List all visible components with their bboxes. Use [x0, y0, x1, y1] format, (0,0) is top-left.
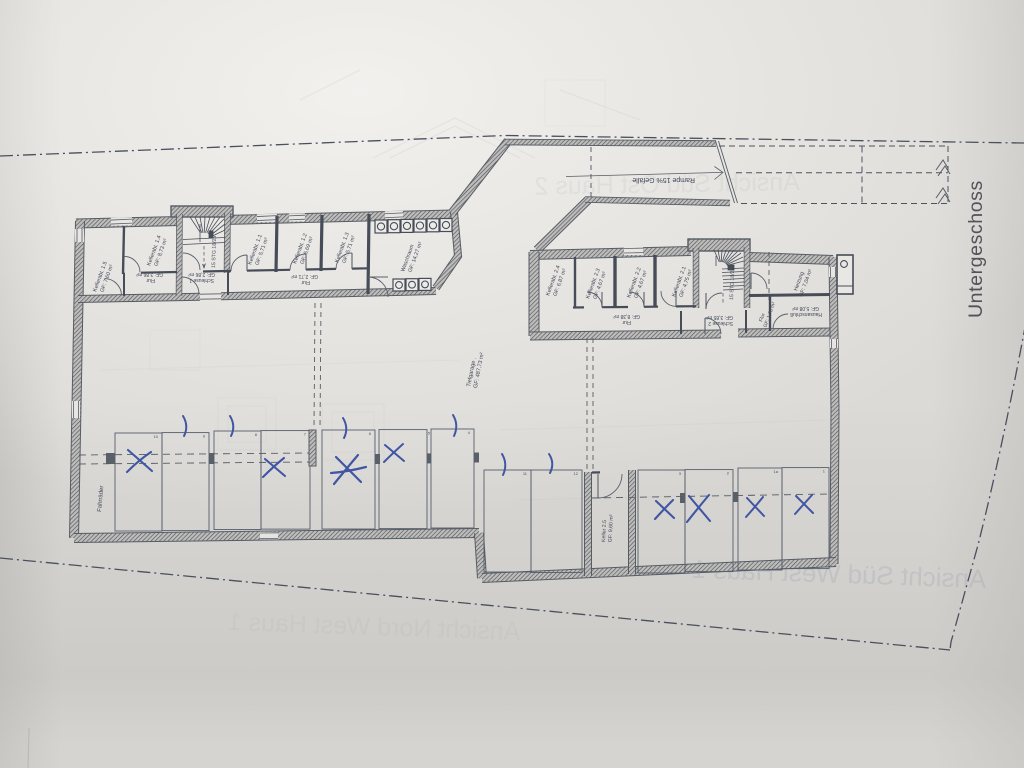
svg-text:6: 6: [369, 431, 372, 436]
svg-text:12: 12: [574, 471, 579, 476]
svg-text:GF: 8,38 m²: GF: 8,38 m²: [613, 313, 640, 319]
svg-text:GF: 9,60 m²: GF: 9,60 m²: [607, 514, 614, 542]
svg-text:2: 2: [727, 471, 730, 476]
svg-text:3: 3: [679, 471, 682, 476]
svg-text:Untergeschoss: Untergeschoss: [965, 180, 987, 318]
svg-text:4: 4: [468, 430, 471, 435]
svg-text:7: 7: [304, 432, 307, 437]
svg-text:11: 11: [523, 471, 528, 476]
svg-text:GF: 2,86 m²: GF: 2,86 m²: [188, 271, 215, 277]
svg-text:GF: 3,86 m²: GF: 3,86 m²: [136, 271, 163, 277]
svg-text:GF: 3,85 m²: GF: 3,85 m²: [706, 314, 733, 320]
svg-text:GF: 2,71 m²: GF: 2,71 m²: [291, 273, 318, 279]
svg-text:8: 8: [255, 432, 258, 437]
svg-text:15 STG 18/25: 15 STG 18/25: [729, 267, 736, 300]
svg-text:GF: 5,08 m²: GF: 5,08 m²: [792, 305, 819, 311]
svg-text:10: 10: [154, 434, 159, 439]
svg-text:Rampe 15% Gefälle: Rampe 15% Gefälle: [632, 176, 695, 183]
svg-text:Fahrräder: Fahrräder: [97, 485, 105, 512]
svg-text:1a: 1a: [774, 469, 779, 474]
svg-text:Ansicht Süd West Haus 1: Ansicht Süd West Haus 1: [692, 554, 987, 594]
svg-text:15 STG 18/25: 15 STG 18/25: [211, 235, 218, 268]
svg-text:1: 1: [823, 469, 826, 474]
svg-text:5: 5: [428, 431, 431, 436]
svg-text:Ansicht Nord West Haus 1: Ansicht Nord West Haus 1: [227, 608, 521, 646]
svg-text:9: 9: [203, 434, 206, 439]
